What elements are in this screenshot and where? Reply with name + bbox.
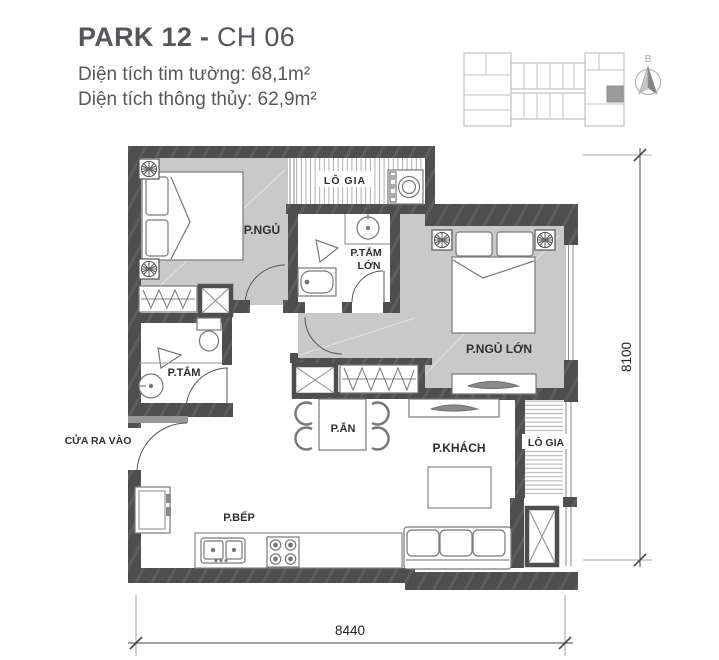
stove-icon: [267, 537, 299, 567]
sofa-icon: [404, 527, 511, 569]
window-loggia-side: [563, 402, 576, 568]
label-loggia-top: LÔ GIA: [324, 174, 366, 187]
shaft-icon: [294, 365, 336, 395]
ceiling-fan-icon: [139, 259, 159, 279]
label-bigbath-2: LỚN: [358, 259, 381, 272]
toilet-icon: [197, 318, 221, 351]
wardrobe-icon: [139, 286, 197, 312]
shower-corner-icon: [158, 348, 181, 368]
kitchen-sink-icon: [201, 538, 245, 563]
coffee-table-icon: [428, 467, 491, 508]
wardrobe-icon: [340, 365, 418, 393]
door-arc-bigbath: [352, 271, 383, 302]
compass-icon: B: [636, 54, 661, 95]
ceiling-fan-icon: [139, 159, 159, 179]
double-bed-icon: [142, 172, 243, 260]
shaft-icon: [527, 508, 557, 565]
label-bigbath-1: P.TẮM: [350, 246, 382, 259]
ceiling-fan-icon: [432, 230, 452, 250]
ceiling-fan-icon: [535, 230, 555, 250]
label-master-bedroom: P.NGỦ LỚN: [466, 341, 532, 356]
sink-icon: [357, 214, 379, 239]
dimension-vertical: [583, 148, 652, 567]
label-loggia-side: LÔ GIA: [528, 436, 565, 449]
shower-corner-icon: [316, 240, 338, 262]
washing-machine-icon: [388, 170, 423, 204]
label-entrance: CỬA RA VÀO: [65, 434, 132, 447]
window-master: [566, 245, 576, 360]
floorplan-drawing: B: [0, 0, 719, 660]
label-bedroom: P.NGỦ: [244, 222, 280, 237]
label-bathroom: P.TẮM: [168, 366, 201, 379]
tv-cabinet-icon: [452, 374, 536, 394]
floorplan-page: PARK 12 - CH 06 Diện tích tim tường: 68,…: [0, 0, 719, 660]
label-kitchen: P.BẾP: [223, 511, 255, 524]
bathtub-icon: [298, 268, 336, 296]
building-locator: [464, 53, 624, 126]
north-label: B: [645, 54, 652, 65]
label-living: P.KHÁCH: [432, 440, 485, 455]
dimension-width-value: 8440: [335, 623, 365, 638]
label-dining: P.ĂN: [331, 422, 356, 435]
fridge-icon: [135, 487, 171, 533]
door-arc-entrance: [137, 423, 187, 473]
highlighted-unit: [607, 86, 623, 102]
window-bedroom-loggia: [288, 158, 296, 204]
sink-icon: [139, 374, 163, 398]
tv-cabinet-icon: [409, 399, 499, 417]
dimension-height-value: 8100: [619, 342, 634, 372]
entry-threshold: [128, 416, 188, 423]
shaft-icon: [200, 286, 231, 315]
